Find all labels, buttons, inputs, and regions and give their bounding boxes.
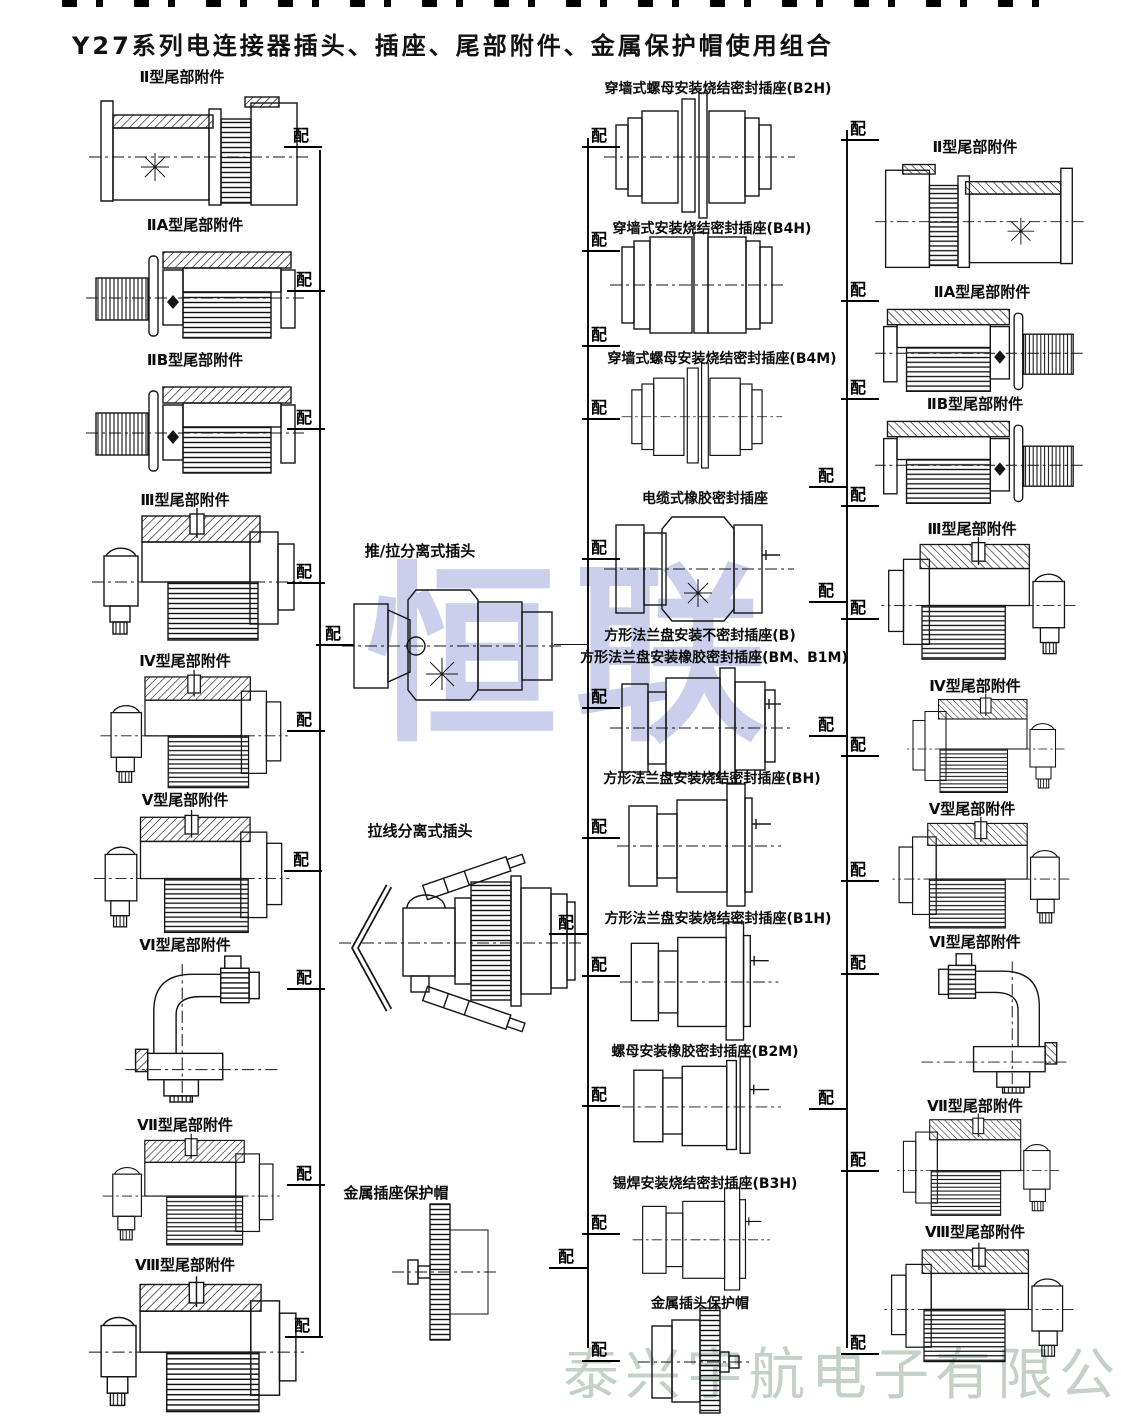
connection-line-left: [319, 150, 321, 1338]
page-top-clipped-text-fragments: [62, 0, 1062, 7]
diagram-tail-iv-right: [895, 692, 1075, 797]
diagram-socket-b2h: [612, 93, 787, 218]
match-mark: 配: [558, 1249, 574, 1265]
diagram-socket-b1h: [625, 922, 775, 1040]
diagram-tail-vii-left: [92, 1132, 292, 1250]
label-socket-b-bm-line1: 方形法兰盘安装不密封插座(B): [604, 625, 795, 645]
match-mark: 配: [296, 712, 312, 728]
diagram-socket-b2m: [630, 1055, 775, 1155]
diagram-socket-cable: [612, 505, 787, 630]
diagram-socket-b3h: [632, 1188, 772, 1290]
diagram-tail-vi-right: [905, 948, 1075, 1093]
diagram-tail-iv-left: [95, 668, 295, 793]
centerline-extension: [554, 644, 587, 645]
diagram-tail-v-right: [880, 815, 1080, 933]
diagram-tail-iii-left: [98, 506, 298, 646]
page-title: Y27系列电连接器插头、插座、尾部附件、金属保护帽使用组合: [72, 26, 834, 61]
diagram-tail-ii-right: [878, 153, 1078, 277]
label-tail-ii-left: Ⅱ型尾部附件: [140, 66, 225, 87]
match-mark: 配: [850, 1335, 866, 1351]
match-mark: 配: [591, 1087, 607, 1103]
match-mark: 配: [850, 282, 866, 298]
diagram-tail-vii-right: [880, 1112, 1075, 1220]
match-mark: 配: [296, 970, 312, 986]
match-mark: 配: [296, 1166, 312, 1182]
diagram-tail-iib-left: [92, 375, 302, 480]
match-mark: 配: [591, 1342, 607, 1358]
match-mark: 配: [591, 400, 607, 416]
match-mark: 配: [818, 583, 834, 599]
diagram-tail-iib-right: [872, 410, 1082, 510]
diagram-socket-protective-cap: [402, 1202, 492, 1342]
match-mark: 配: [591, 232, 607, 248]
match-mark: 配: [296, 410, 312, 426]
diagram-tail-iia-right: [872, 298, 1082, 398]
label-tail-iia-left: ⅡA型尾部附件: [147, 214, 244, 235]
match-mark: 配: [294, 1318, 310, 1334]
match-mark: 配: [591, 819, 607, 835]
match-mark: 配: [591, 689, 607, 705]
match-mark: 配: [296, 564, 312, 580]
diagram-tail-vi-left: [118, 950, 293, 1102]
match-mark: 配: [558, 915, 574, 931]
match-mark: 配: [850, 955, 866, 971]
diagram-plug-protective-cap: [648, 1308, 743, 1413]
diagram-socket-b4m: [622, 363, 782, 468]
match-mark: 配: [296, 272, 312, 288]
match-mark: 配: [850, 862, 866, 878]
match-mark: 配: [293, 852, 309, 868]
drawing-page: 恒联 泰兴宇航电子有限公司 Y27系列电连接器插头、插座、尾部附件、金属保护帽使…: [0, 0, 1121, 1424]
match-mark: 配: [591, 128, 607, 144]
connection-line-right: [846, 130, 848, 1348]
match-mark: 配: [850, 487, 866, 503]
label-pushpull-plug: 推/拉分离式插头: [365, 540, 475, 561]
diagram-tail-iia-left: [92, 240, 302, 345]
diagram-socket-b-bm: [618, 668, 783, 783]
diagram-pushpull-plug: [350, 568, 555, 718]
label-tail-v-left: Ⅴ型尾部附件: [142, 789, 229, 810]
label-tail-iib-left: ⅡB型尾部附件: [147, 349, 243, 370]
label-tail-viii-right: Ⅷ型尾部附件: [925, 1221, 1025, 1242]
match-mark: 配: [850, 380, 866, 396]
label-socket-protective-cap: 金属插座保护帽: [343, 1182, 448, 1203]
match-mark: 配: [850, 600, 866, 616]
label-pullwire-plug: 拉线分离式插头: [367, 820, 472, 841]
match-mark: 配: [818, 1090, 834, 1106]
diagram-socket-bh: [625, 784, 775, 906]
diagram-tail-viii-right: [888, 1240, 1068, 1368]
diagram-tail-iii-right: [885, 535, 1070, 665]
match-mark: 配: [850, 737, 866, 753]
diagram-pullwire-plug: [343, 848, 583, 1028]
diagram-tail-viii-left: [95, 1272, 300, 1420]
label-socket-b-bm-line2: 方形法兰盘安装橡胶密封插座(BM、B1M): [580, 647, 848, 667]
match-mark: 配: [818, 717, 834, 733]
match-mark: 配: [591, 1215, 607, 1231]
connection-line-middle: [587, 138, 589, 1348]
match-mark: 配: [591, 327, 607, 343]
match-mark: 配: [818, 468, 834, 484]
match-mark: 配: [293, 128, 309, 144]
match-mark: 配: [850, 1152, 866, 1168]
diagram-tail-ii-left: [95, 85, 305, 215]
match-mark: 配: [850, 121, 866, 137]
match-mark: 配: [591, 957, 607, 973]
diagram-socket-b4h: [618, 233, 778, 333]
match-mark: 配: [591, 540, 607, 556]
match-mark: 配: [325, 626, 341, 642]
diagram-tail-v-left: [90, 808, 295, 938]
